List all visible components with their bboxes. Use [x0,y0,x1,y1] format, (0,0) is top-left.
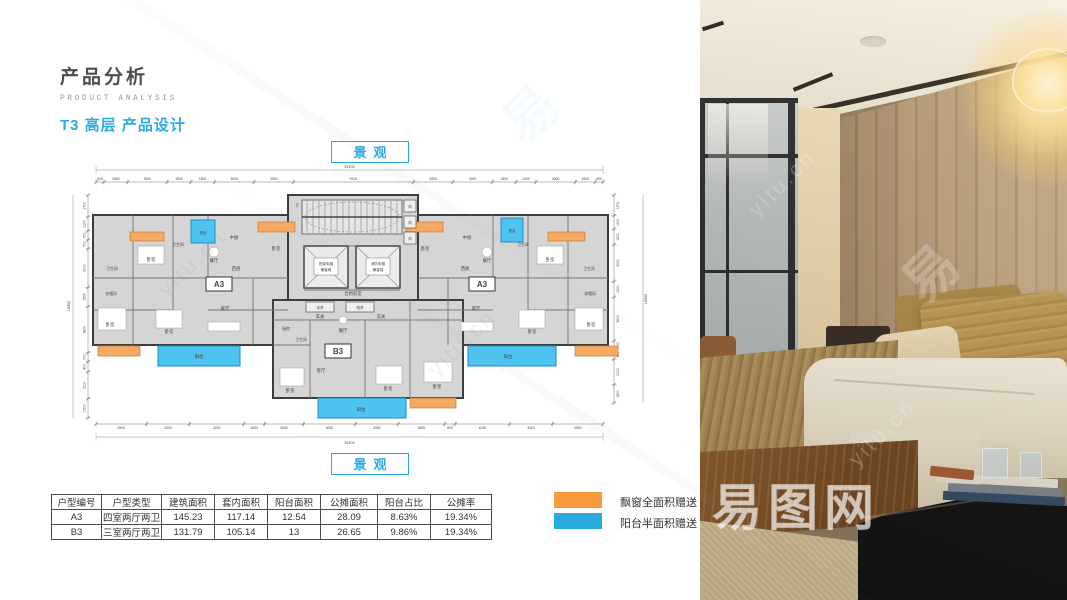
elec-shaft-label: 电井 [356,305,364,310]
title-block: 产品分析 PRODUCT ANALYSIS T3 高层 产品设计 [60,62,186,135]
room-label: 阳台 [357,406,366,413]
table-header-cell: 套内面积 [215,495,268,510]
dim-label: 1500 [83,293,87,301]
elevator1-label2: 兼客梯 [321,267,332,272]
room-label: 客厅 [317,367,326,374]
stair-core: 下 上 [295,200,409,234]
photo-glass-cube [1020,452,1042,478]
dim-label: 1500 [522,177,530,181]
dim-label: 4000 [326,426,334,430]
unit-label-b3: B3 [333,347,344,356]
table-cell: 131.79 [162,525,215,540]
table-cell: 三室两厅两卫 [102,525,162,540]
table-cell: 19.34% [431,510,492,525]
room-label: 卫生间 [106,266,118,271]
dim-total-right-label: 16500 [644,294,648,305]
photo-ceiling-spotlight [860,36,886,47]
room-label: 卧室 [165,328,174,335]
room-label: 玄关 [316,313,325,320]
table-cell: 26.65 [321,525,378,540]
dim-label: 1500 [83,405,87,413]
table-row: B3三室两厅两卫131.79105.141326.659.86%19.34% [52,525,492,540]
bay-window-swatch [554,492,602,508]
room-label: 阳台 [504,353,513,360]
table-header-cell: 户型类型 [102,495,162,510]
dim-label: 3000 [429,177,437,181]
room-label: 阳台 [195,353,204,360]
dim-label: 3300 [373,426,381,430]
slide: 产品分析 PRODUCT ANALYSIS T3 高层 产品设计 景观 景观 3… [0,0,1067,600]
dim-label: 1600 [250,426,258,430]
dim-total-bottom-label: 39100 [344,441,355,445]
dim-label: 3000 [230,177,238,181]
page-subtitle: PRODUCT ANALYSIS [60,94,186,103]
dim-label: 9100 [350,177,358,181]
room-label: 卧室 [528,328,537,335]
dim-label: 700 [83,241,87,247]
dim-label: 700 [83,232,87,238]
water-shaft-label: 水井 [316,305,324,310]
photo-pendant-lamp [1012,48,1067,112]
dim-label: 600 [97,177,103,181]
bay-window [548,232,585,241]
dim-label: 1100 [83,220,87,227]
dim-label: 3900 [574,426,582,430]
room-label: 阳台 [509,228,516,233]
table-cell: 117.14 [215,510,268,525]
room-label: 卧室 [147,256,156,263]
dim-label: 1100 [616,219,620,226]
room-label: 客厅 [221,305,230,312]
table-cell: B3 [52,525,102,540]
stair-label-down: 下 [295,203,299,208]
table-cell: 13 [268,525,321,540]
table-cell: 28.09 [321,510,378,525]
legend-label: 飘窗全面积赠送 [620,494,697,510]
view-badge-bottom: 景观 [331,453,409,475]
dim-label: 3000 [552,177,560,181]
dim-total-bottom [96,433,603,441]
table-header-cell: 建筑面积 [162,495,215,510]
elevator2-label: 消防电梯 [371,261,386,266]
table-header-cell: 阳台面积 [268,495,321,510]
elevator1-label: 担架电梯 [319,261,334,266]
table-cell: 105.14 [215,525,268,540]
room-label: 卧室 [384,385,393,392]
room-label: 卫生间 [172,242,184,247]
photo-window-light [708,104,768,184]
wind-shaft-label: 风 [408,237,412,241]
room-label: 卧室 [587,321,596,328]
elevator2-label2: 兼客梯 [373,267,384,272]
dim-label: 3000 [270,177,278,181]
room-label: 卧室 [546,256,555,263]
dim-label: 3000 [616,259,620,267]
dim-label: 1700 [616,201,620,209]
dim-label: 1800 [500,177,508,181]
room-label: 玄关 [377,313,386,320]
dim-total-left-label: 16500 [67,301,71,312]
dim-label: 1800 [112,177,120,181]
room-label: 卫生间 [295,337,307,342]
photo-glass-cube [982,448,1008,478]
room-label: 衣帽间 [105,291,117,296]
room-label: 阳台 [200,230,207,235]
room-label: 卧室 [272,245,281,252]
bay-window [98,346,140,356]
dim-label: 700 [83,354,87,360]
dim-label: 1300 [616,285,620,293]
dim-label: 1800 [175,177,183,181]
dim-label: 800 [447,426,453,430]
dim-label: 3900 [118,426,126,430]
unit-label-a3-left: A3 [214,280,225,289]
dim-label: 3600 [83,326,87,334]
dim-label: 1500 [616,390,620,398]
bay-window [410,398,456,408]
dim-label: 3600 [418,426,426,430]
dim-label: 800 [83,364,87,370]
table-cell: A3 [52,510,102,525]
dim-label: 2100 [616,368,620,376]
dim-label: 3000 [469,177,477,181]
table-header-cell: 户型编号 [52,495,102,510]
dim-label: 2100 [83,381,87,389]
legend-label: 阳台半面积赠送 [620,515,697,531]
table-row: A3四室两厅两卫145.23117.1412.5428.098.63%19.34… [52,510,492,525]
balcony-swatch [554,513,602,529]
room-label: 餐厅 [339,327,348,334]
dim-label: 1700 [83,202,87,210]
table-header-cell: 阳台占比 [378,495,431,510]
page-title: 产品分析 [60,62,186,89]
spec-table: 户型编号户型类型建筑面积套内面积阳台面积公摊面积阳台占比公摊率 A3四室两厅两卫… [51,494,492,540]
room-label: 厨房 [282,326,290,331]
bedroom-photo: yitu.cn yitu.cn 易 [700,0,1067,600]
table-header-row: 户型编号户型类型建筑面积套内面积阳台面积公摊面积阳台占比公摊率 [52,495,492,510]
room-label: 餐厅 [483,257,492,264]
table-cell: 145.23 [162,510,215,525]
room-label: 中厨 [230,234,239,241]
dim-label: 600 [596,177,602,181]
wind-shaft-label: 风 [408,205,412,209]
room-label: 卧室 [421,245,430,252]
section-title: T3 高层 产品设计 [60,114,186,135]
room-label: 餐厅 [210,257,219,264]
room-label: 中厨 [463,234,472,241]
dim-total-top-label: 39100 [344,165,355,169]
shared-lobby-label: 合用前室 [344,290,362,297]
dim-label: 3000 [144,177,152,181]
table-cell: 8.63% [378,510,431,525]
dim-label: 1300 [616,233,620,241]
room-label: 卧室 [286,387,295,394]
table-cell: 19.34% [431,525,492,540]
dim-label: 3000 [83,264,87,272]
room-label: 卧室 [106,321,115,328]
bay-window [575,346,618,356]
dim-label: 4200 [479,426,487,430]
dim-label: 3000 [280,426,288,430]
room-label: 卫生间 [583,266,595,271]
room-label: 卧室 [433,383,442,390]
dim-label: 3300 [164,426,172,430]
room-label: 客厅 [472,305,481,312]
bay-window [130,232,164,241]
dim-label: 1500 [581,177,589,181]
table-cell: 12.54 [268,510,321,525]
dim-label: 4200 [213,426,221,430]
dim-label: 3300 [527,426,535,430]
unit-label-a3-right: A3 [477,280,488,289]
wind-shaft-label: 风 [408,221,412,225]
table-header-cell: 公摊率 [431,495,492,510]
table-cell: 四室两厅两卫 [102,510,162,525]
table-cell: 9.86% [378,525,431,540]
table-header-cell: 公摊面积 [321,495,378,510]
